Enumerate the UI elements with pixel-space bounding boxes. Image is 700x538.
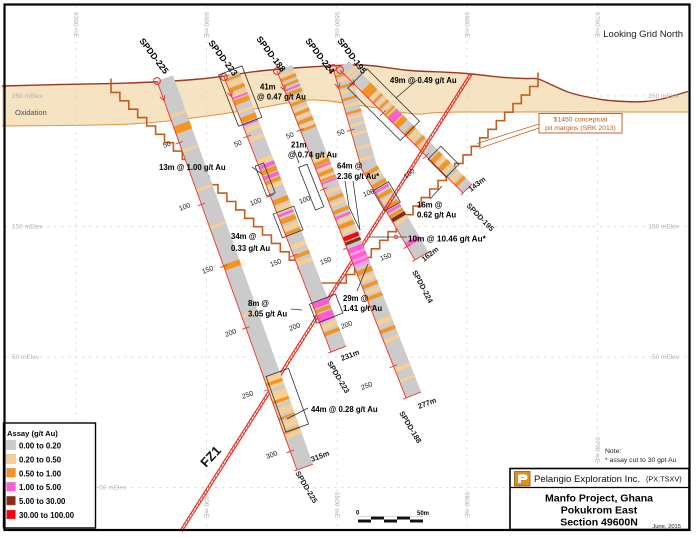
svg-text:150 mElev: 150 mElev <box>648 224 679 231</box>
svg-text:9500 mE: 9500 mE <box>333 492 340 519</box>
svg-text:64m @: 64m @ <box>337 162 363 171</box>
svg-text:9700 mE: 9700 mE <box>594 12 601 39</box>
svg-text:@ 0.74 g/t Au: @ 0.74 g/t Au <box>288 151 337 160</box>
svg-text:(PX:TSXV): (PX:TSXV) <box>646 475 682 484</box>
svg-text:0.00 to 0.20: 0.00 to 0.20 <box>19 442 62 451</box>
svg-text:29m @: 29m @ <box>343 294 369 303</box>
svg-text:Looking Grid North: Looking Grid North <box>603 29 683 40</box>
svg-text:Note:: Note: <box>605 448 621 455</box>
svg-text:pit margins (SRK 2013): pit margins (SRK 2013) <box>545 125 616 132</box>
svg-text:16m @: 16m @ <box>417 201 443 210</box>
svg-text:9600 mE: 9600 mE <box>463 492 470 519</box>
svg-text:21m: 21m <box>291 141 307 150</box>
svg-text:Pokukrom East: Pokukrom East <box>561 505 638 517</box>
svg-text:1.41 g/t Au: 1.41 g/t Au <box>343 304 382 313</box>
svg-text:0.50 to 1.00: 0.50 to 1.00 <box>19 469 62 478</box>
svg-text:* assay cut to 30 gpt Au: * assay cut to 30 gpt Au <box>605 457 677 464</box>
svg-text:10m @ 10.46 g/t Au*: 10m @ 10.46 g/t Au* <box>408 235 487 244</box>
svg-text:9400 mE: 9400 mE <box>203 12 210 39</box>
svg-text:13m @ 1.00 g/t Au: 13m @ 1.00 g/t Au <box>159 163 226 172</box>
svg-text:50m: 50m <box>417 511 429 517</box>
svg-text:Manfo Project, Ghana: Manfo Project, Ghana <box>545 493 653 505</box>
svg-text:49m @ 0.49 g/t Au: 49m @ 0.49 g/t Au <box>390 76 457 85</box>
svg-text:1.00 to 5.00: 1.00 to 5.00 <box>19 483 62 492</box>
svg-text:9300 mE: 9300 mE <box>72 12 79 39</box>
svg-text:50 mElev: 50 mElev <box>12 354 40 361</box>
svg-text:Assay (g/t Au): Assay (g/t Au) <box>7 429 58 438</box>
svg-text:30.00 to 100.00: 30.00 to 100.00 <box>19 511 75 520</box>
svg-text:9600 mE: 9600 mE <box>463 12 470 39</box>
svg-text:0.20 to 0.50: 0.20 to 0.50 <box>19 455 62 464</box>
svg-text:150 mElev: 150 mElev <box>12 224 43 231</box>
svg-text:50 mElev: 50 mElev <box>652 354 680 361</box>
svg-text:41m: 41m <box>260 83 276 92</box>
svg-text:Section 49600N: Section 49600N <box>560 517 638 529</box>
svg-text:8m @: 8m @ <box>248 299 269 308</box>
svg-text:0.62 g/t Au: 0.62 g/t Au <box>417 211 456 220</box>
svg-text:9400 mE: 9400 mE <box>203 492 210 519</box>
svg-text:0.33 g/t Au: 0.33 g/t Au <box>231 244 270 253</box>
svg-text:44m @ 0.28 g/t Au: 44m @ 0.28 g/t Au <box>311 405 378 414</box>
svg-text:-50 mElev: -50 mElev <box>97 485 127 492</box>
svg-text:2.36 g/t Au*: 2.36 g/t Au* <box>337 172 380 181</box>
svg-text:3.05 g/t Au: 3.05 g/t Au <box>248 310 287 319</box>
svg-text:5.00 to 30.00: 5.00 to 30.00 <box>19 497 66 506</box>
svg-text:250 mElev: 250 mElev <box>12 93 43 100</box>
svg-text:@ 0.47 g/t Au: @ 0.47 g/t Au <box>257 93 306 102</box>
svg-text:9700 mE: 9700 mE <box>594 437 601 464</box>
svg-text:250 mElev: 250 mElev <box>648 93 679 100</box>
svg-text:9500 mE: 9500 mE <box>333 12 340 39</box>
svg-text:Pelangio Exploration Inc.: Pelangio Exploration Inc. <box>534 474 640 485</box>
svg-text:$1450 conceptual: $1450 conceptual <box>554 117 608 124</box>
svg-text:Oxidation: Oxidation <box>15 108 47 117</box>
svg-text:34m @: 34m @ <box>231 232 257 241</box>
